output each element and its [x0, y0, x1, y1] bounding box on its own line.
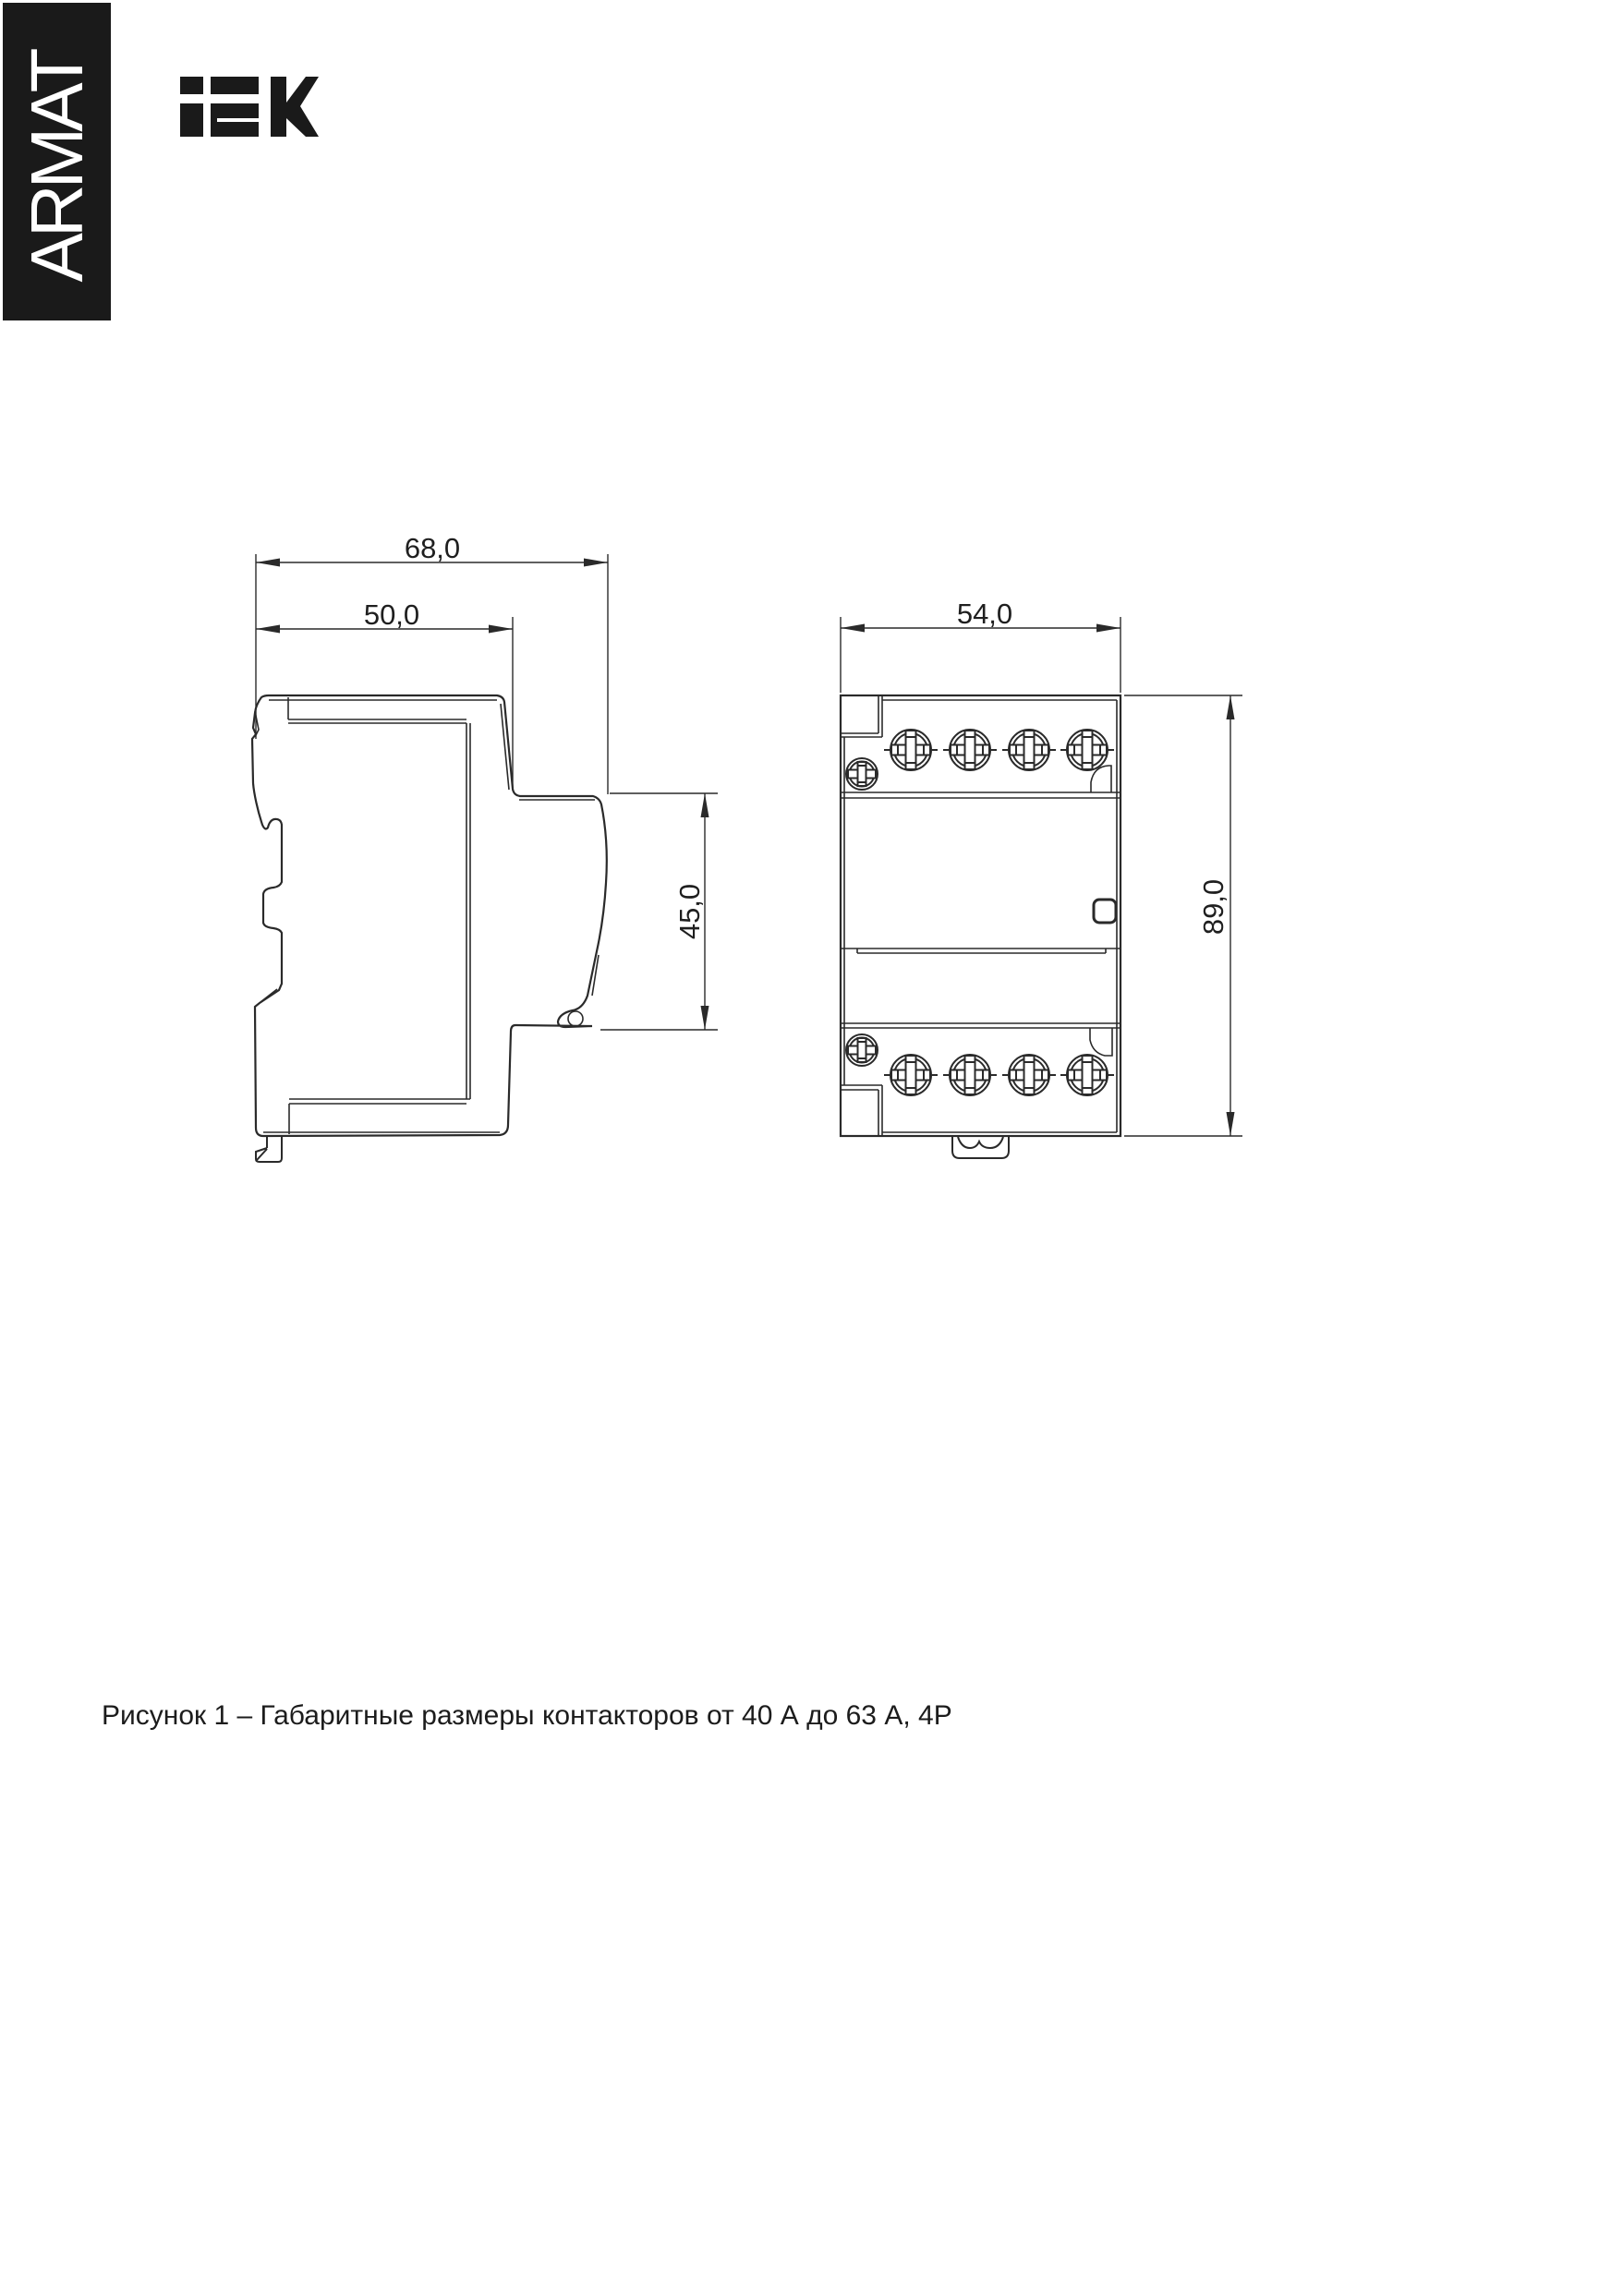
screw-icon — [884, 730, 938, 770]
side-view-inner-lines — [255, 697, 599, 1134]
screw-icon — [1002, 730, 1056, 770]
front-view-bottom-terminals — [846, 1034, 1114, 1095]
front-view-din-clip — [952, 1136, 1009, 1158]
screw-icon — [884, 1055, 938, 1095]
dimension-drawing: 68,0 50,0 45,0 — [0, 0, 1611, 2296]
side-dim-overall-width: 68,0 — [256, 532, 608, 794]
dim-label-50: 50,0 — [364, 598, 419, 631]
dim-label-45: 45,0 — [673, 884, 706, 939]
dim-label-89: 89,0 — [1197, 879, 1229, 935]
side-view-din-clip — [256, 1136, 282, 1162]
screw-icon — [943, 730, 997, 770]
side-view-outline — [252, 695, 607, 1136]
screw-icon — [1060, 1055, 1114, 1095]
front-view-top-terminals — [846, 730, 1114, 790]
dim-label-68: 68,0 — [405, 532, 460, 564]
front-view: 54,0 89,0 — [841, 598, 1242, 1158]
screw-icon — [1060, 730, 1114, 770]
front-dim-height: 89,0 — [1124, 695, 1242, 1136]
front-view-indicator-window — [1094, 900, 1116, 923]
screw-icon — [846, 1034, 878, 1066]
screw-icon — [846, 758, 878, 790]
side-view: 68,0 50,0 45,0 — [252, 532, 718, 1162]
screw-icon — [943, 1055, 997, 1095]
screw-icon — [1002, 1055, 1056, 1095]
side-dim-din-depth: 45,0 — [600, 793, 718, 1030]
dim-label-54: 54,0 — [957, 598, 1012, 630]
manual-page: { "banner": { "label": "ARMAT", "bg_colo… — [0, 0, 1611, 2296]
figure-caption: Рисунок 1 – Габаритные размеры контактор… — [102, 1700, 952, 1732]
front-dim-width: 54,0 — [841, 598, 1120, 693]
